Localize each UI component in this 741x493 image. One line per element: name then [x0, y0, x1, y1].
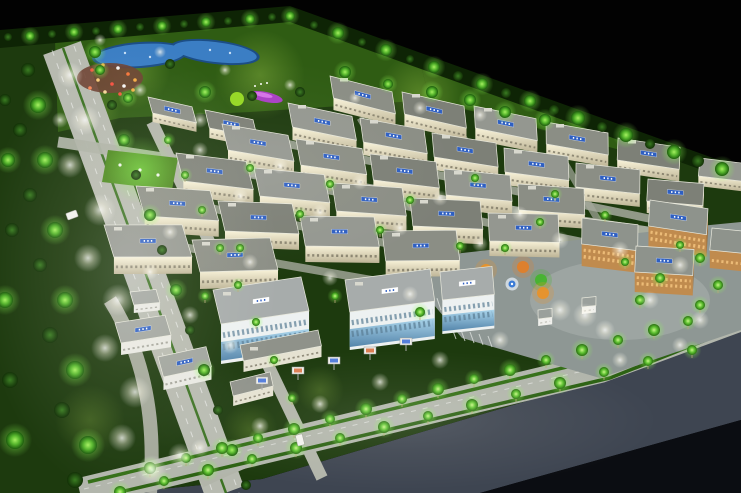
street-light-glow: [611, 241, 629, 259]
dormitory-building: [710, 228, 741, 272]
model-photo-frame: [0, 0, 741, 493]
street-light-glow: [473, 108, 487, 122]
tree: [224, 17, 232, 25]
palm-tree: [536, 218, 544, 226]
palm-tree: [601, 211, 609, 219]
tree: [476, 78, 488, 90]
tree: [180, 20, 188, 28]
tree: [358, 38, 366, 46]
palm-tree: [655, 273, 665, 283]
street-light-glow: [472, 236, 488, 252]
tree: [92, 27, 100, 35]
palm-tree: [621, 258, 629, 266]
palm-tree: [643, 356, 653, 366]
tree: [6, 431, 24, 449]
warehouse-building: [576, 163, 640, 207]
palm-tree: [471, 174, 479, 182]
tree: [597, 122, 607, 132]
palm-tree: [713, 280, 723, 290]
roof-ac-unit: [514, 150, 522, 154]
street-light-glow: [491, 331, 509, 349]
tree: [268, 13, 276, 21]
tree: [21, 63, 35, 77]
tree: [524, 95, 536, 107]
street-light-glow: [512, 206, 528, 222]
palm-tree: [613, 335, 623, 345]
street-light-glow: [612, 352, 628, 368]
street-light-glow: [672, 337, 688, 353]
tree: [406, 55, 414, 63]
tree: [332, 27, 344, 39]
tree: [201, 17, 211, 27]
tree: [136, 23, 144, 31]
tree: [245, 14, 255, 24]
palm-tree: [456, 242, 464, 250]
tree: [285, 11, 295, 21]
tree: [501, 88, 511, 98]
roof-ac-unit: [355, 282, 363, 286]
street-light-glow: [691, 311, 709, 329]
palm-tree: [687, 345, 697, 355]
street-light-glow: [549, 299, 571, 321]
tree: [380, 44, 392, 56]
tree: [539, 114, 551, 126]
palm-tree: [676, 241, 684, 249]
palm-tree: [415, 307, 425, 317]
tree: [453, 71, 463, 81]
palm-tree: [576, 344, 588, 356]
palm-tree: [695, 300, 705, 310]
tree: [428, 61, 440, 73]
tree: [241, 480, 251, 490]
palm-tree: [648, 324, 660, 336]
roof-ac-unit: [556, 124, 564, 128]
palm-tree: [501, 244, 509, 252]
tree: [4, 33, 12, 41]
roof-ac-unit: [528, 186, 536, 190]
palm-tree: [551, 190, 559, 198]
tree: [48, 30, 56, 38]
street-light-glow: [551, 231, 569, 249]
street-light-glow: [595, 320, 615, 340]
tree: [25, 31, 35, 41]
roof-ac-unit: [412, 94, 420, 98]
tree: [667, 145, 681, 159]
tree: [645, 139, 655, 149]
street-light-glow: [402, 286, 418, 302]
roof-ac-unit: [498, 215, 506, 219]
tree: [571, 111, 585, 125]
tree: [464, 94, 476, 106]
tree: [499, 106, 511, 118]
tree: [310, 21, 318, 29]
roof-ac-unit: [586, 165, 594, 169]
street-light-glow: [671, 256, 689, 274]
fountain: [506, 278, 519, 291]
tree: [113, 24, 123, 34]
tree: [157, 21, 167, 31]
tree: [69, 27, 79, 37]
tree: [619, 128, 633, 142]
tree: [426, 86, 438, 98]
palm-tree: [331, 292, 339, 300]
palm-tree: [695, 253, 705, 263]
street-light-glow: [641, 291, 659, 309]
tree: [692, 155, 704, 167]
admin-building: [440, 266, 494, 334]
street-light-glow: [573, 303, 597, 327]
architectural-model-photo: [0, 0, 741, 493]
tree: [715, 162, 729, 176]
